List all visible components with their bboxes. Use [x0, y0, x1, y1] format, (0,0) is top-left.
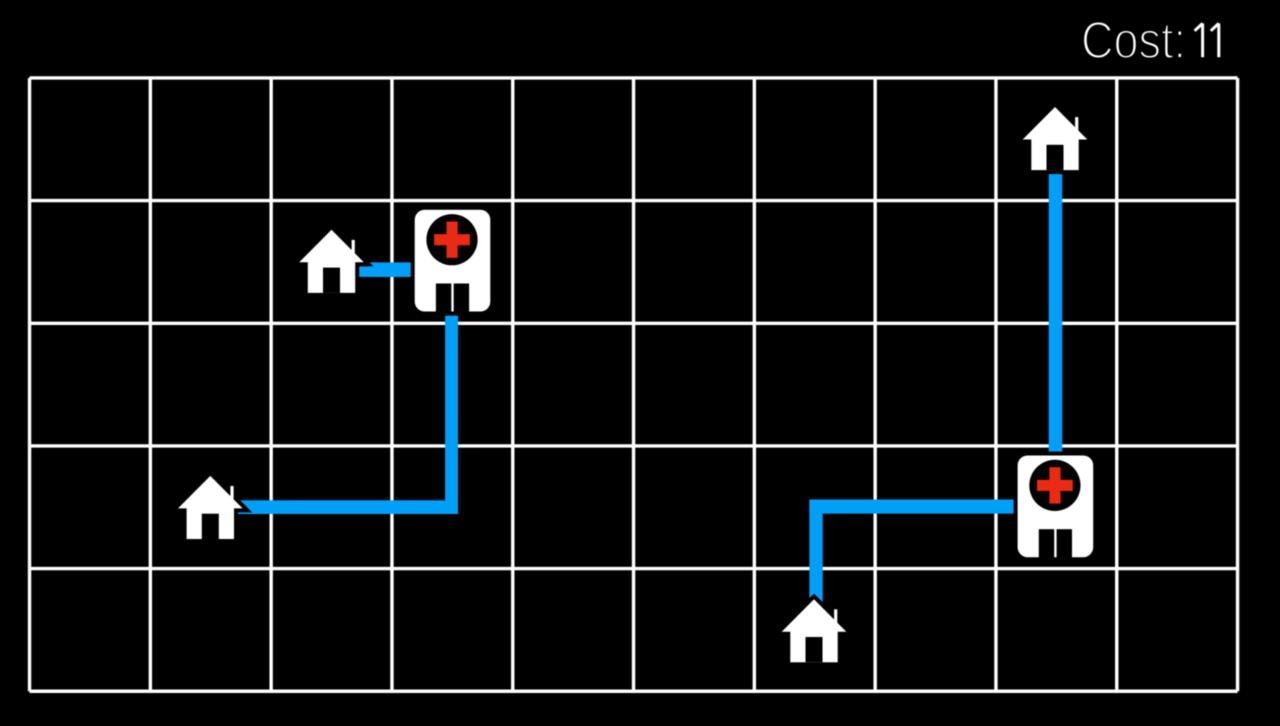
- svg-text:Cost:: Cost:: [1081, 12, 1186, 70]
